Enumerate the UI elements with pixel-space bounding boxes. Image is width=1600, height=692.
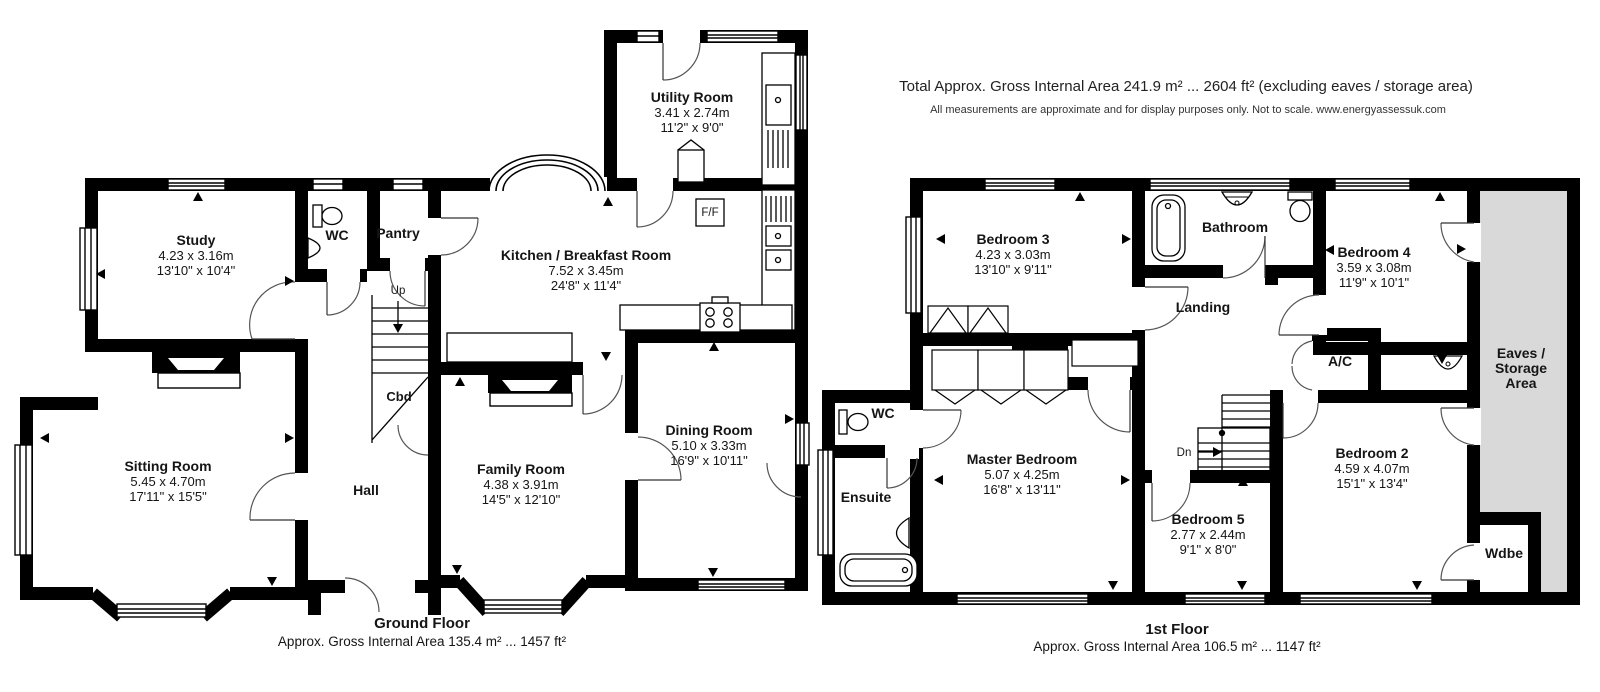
annotation-dn: Dn xyxy=(1177,446,1192,461)
ground-floor-title: Ground Floor xyxy=(374,616,470,631)
annotation-cbd: Cbd xyxy=(386,389,411,404)
master-wardrobes xyxy=(932,340,1138,404)
toilet-icon-ground-wc xyxy=(313,205,342,227)
bath-icon-ensuite xyxy=(840,554,917,586)
annotation-ff: F/F xyxy=(701,206,718,221)
room-label-utility: Utility Room 3.41 x 2.74m 11'2" x 9'0" xyxy=(651,90,733,135)
room-label-bedroom4: Bedroom 4 3.59 x 3.08m 11'9" x 10'1" xyxy=(1336,245,1411,290)
room-label-landing: Landing xyxy=(1176,300,1230,315)
disclaimer-text: All measurements are approximate and for… xyxy=(930,104,1446,116)
toilet-icon-first-wc xyxy=(839,410,868,434)
room-label-bathroom: Bathroom xyxy=(1202,220,1268,235)
sink-icon-ground-wc xyxy=(308,238,320,258)
fireplace-sitting-room xyxy=(152,352,240,388)
room-label-wdbe: Wdbe xyxy=(1485,546,1523,561)
room-label-hall: Hall xyxy=(353,483,379,498)
dn-arrow-icon xyxy=(1213,447,1222,457)
room-label-study: Study 4.23 x 3.16m 13'10" x 10'4" xyxy=(157,233,236,278)
ground-floor-area: Approx. Gross Internal Area 135.4 m² ...… xyxy=(278,634,566,649)
room-label-wc-first: WC xyxy=(871,406,894,421)
room-label-ensuite: Ensuite xyxy=(841,490,892,505)
room-label-pantry: Pantry xyxy=(376,226,420,241)
staircase-ground xyxy=(372,295,428,443)
room-label-bedroom3: Bedroom 3 4.23 x 3.03m 13'10" x 9'11" xyxy=(974,232,1052,277)
room-label-dining-room: Dining Room 5.10 x 3.33m 16'9" x 10'11" xyxy=(665,423,752,468)
fireplace-family-room xyxy=(488,375,572,406)
bath-icon-bathroom xyxy=(1152,195,1185,261)
sink-icon-ensuite xyxy=(897,518,910,548)
annotation-up: Up xyxy=(391,284,406,299)
room-label-ac: A/C xyxy=(1328,354,1352,369)
room-label-bedroom5: Bedroom 5 2.77 x 2.44m 9'1" x 8'0" xyxy=(1170,512,1245,557)
toilet-icon-bathroom xyxy=(1288,192,1312,222)
bedroom3-closets xyxy=(928,306,1008,333)
first-floor-title: 1st Floor xyxy=(1145,622,1208,637)
hob-icon xyxy=(700,297,740,332)
room-label-bedroom2: Bedroom 2 4.59 x 4.07m 15'1" x 13'4" xyxy=(1334,446,1409,491)
room-label-sitting-room: Sitting Room 5.45 x 4.70m 17'11" x 15'5" xyxy=(124,459,211,504)
room-label-wc-ground: WC xyxy=(325,228,348,243)
sink-icon-bathroom xyxy=(1222,192,1252,205)
room-label-kitchen: Kitchen / Breakfast Room 7.52 x 3.45m 24… xyxy=(501,248,671,293)
page-title: Total Approx. Gross Internal Area 241.9 … xyxy=(899,78,1473,95)
room-label-family-room: Family Room 4.38 x 3.91m 14'5" x 12'10" xyxy=(477,462,565,507)
first-floor-area: Approx. Gross Internal Area 106.5 m² ...… xyxy=(1033,639,1320,654)
staircase-first xyxy=(1198,395,1270,472)
room-label-eaves: Eaves / Storage Area xyxy=(1495,346,1547,391)
room-label-master-bedroom: Master Bedroom 5.07 x 4.25m 16'8" x 13'1… xyxy=(967,452,1077,497)
up-arrow-icon xyxy=(393,324,403,333)
sink-icon-bedroom2 xyxy=(1434,356,1462,369)
floorplan-page: Total Approx. Gross Internal Area 241.9 … xyxy=(0,0,1600,692)
